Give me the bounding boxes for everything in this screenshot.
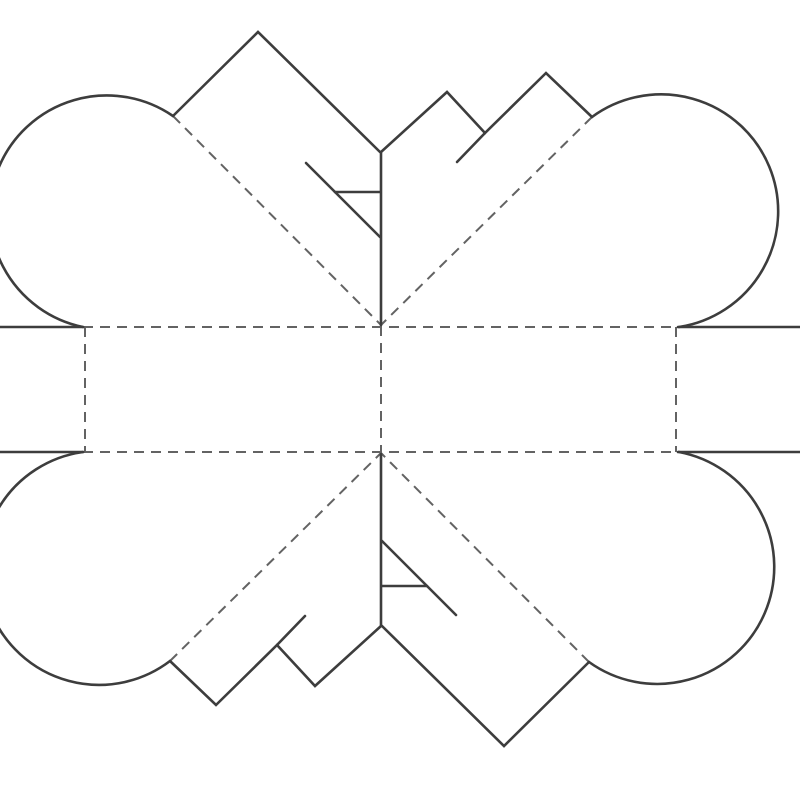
heart-popup-template-drawing [0, 0, 800, 800]
bottom-left-zigzag [170, 626, 381, 705]
fold-diagonal-upper-right [381, 117, 592, 325]
bottom-right-diamond-edges [382, 626, 589, 746]
fold-diagonal-lower-left [170, 453, 381, 661]
top-stair-diagonal [306, 163, 380, 237]
top-right-slit [457, 133, 485, 162]
bottom-stair-diagonal [382, 541, 456, 615]
bottom-left-lobe-arc [0, 452, 170, 685]
fold-diagonal-upper-left [173, 116, 381, 325]
fold-diagonal-lower-right [381, 453, 589, 662]
template-page [0, 0, 800, 800]
top-right-lobe-arc [592, 94, 778, 327]
top-left-diamond-edges [173, 32, 380, 152]
bottom-right-lobe-arc [589, 452, 774, 684]
bottom-left-slit [277, 616, 305, 645]
top-left-lobe-arc [0, 95, 173, 327]
top-right-zigzag [381, 73, 592, 152]
